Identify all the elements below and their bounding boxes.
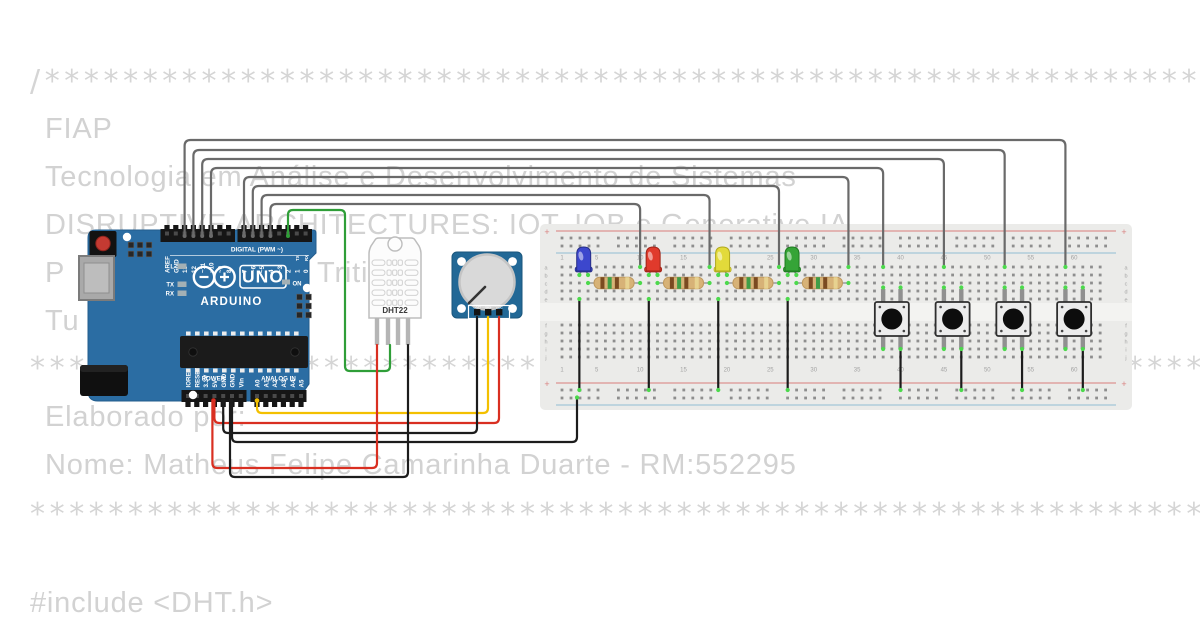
breadboard-hole xyxy=(1029,282,1032,285)
breadboard-hole xyxy=(1030,397,1033,400)
breadboard-hole xyxy=(864,298,867,301)
breadboard-hole xyxy=(587,324,590,327)
breadboard-hole xyxy=(691,266,694,269)
breadboard-hole xyxy=(682,274,685,277)
connection-dot xyxy=(1003,265,1007,269)
breadboard-hole xyxy=(995,348,998,351)
connection-dot xyxy=(647,273,651,277)
pin-label: 0 xyxy=(303,269,310,273)
breadboard-hole xyxy=(734,332,737,335)
breadboard-hole xyxy=(1099,340,1102,343)
breadboard-hole xyxy=(1012,340,1015,343)
breadboard-hole xyxy=(908,397,911,400)
breadboard-hole xyxy=(757,389,760,392)
breadboard-hole xyxy=(691,332,694,335)
breadboard-hole xyxy=(899,237,902,240)
breadboard-hole xyxy=(743,290,746,293)
breadboard-hole xyxy=(852,237,855,240)
breadboard-hole xyxy=(1090,266,1093,269)
breadboard-hole xyxy=(647,290,650,293)
breadboard-hole xyxy=(916,324,919,327)
connection-dot xyxy=(716,388,720,392)
connection-dot xyxy=(586,281,590,285)
breadboard-hole xyxy=(879,245,882,248)
breadboard-hole xyxy=(812,324,815,327)
breadboard-hole xyxy=(1104,397,1107,400)
breadboard-hole xyxy=(1099,298,1102,301)
led-red[interactable] xyxy=(645,247,662,275)
breadboard-hole xyxy=(561,348,564,351)
connection-dot xyxy=(794,281,798,285)
breadboard-hole xyxy=(908,348,911,351)
rail-plus-sign: + xyxy=(1121,379,1126,389)
breadboard-hole xyxy=(813,389,816,392)
breadboard-hole xyxy=(656,298,659,301)
breadboard-hole xyxy=(864,290,867,293)
button-cap[interactable] xyxy=(1064,309,1085,330)
breadboard-hole xyxy=(969,340,972,343)
breadboard-hole xyxy=(635,389,638,392)
button-cap[interactable] xyxy=(881,309,902,330)
breadboard-hole xyxy=(665,324,668,327)
pin-label: GND xyxy=(230,373,237,387)
connection-dot xyxy=(638,281,642,285)
breadboard-hole xyxy=(1047,356,1050,359)
breadboard-hole xyxy=(795,237,798,240)
breadboard-hole xyxy=(1048,245,1051,248)
breadboard-hole xyxy=(561,266,564,269)
breadboard-hole xyxy=(665,290,668,293)
row-letter: b xyxy=(544,273,547,279)
breadboard-hole xyxy=(587,332,590,335)
breadboard-hole xyxy=(847,348,850,351)
breadboard-hole xyxy=(804,389,807,392)
breadboard-hole xyxy=(916,356,919,359)
connection-dot xyxy=(1063,285,1067,289)
connection-dot xyxy=(846,265,850,269)
breadboard-hole xyxy=(879,389,882,392)
breadboard-hole xyxy=(778,274,781,277)
resistor[interactable] xyxy=(796,277,848,289)
breadboard-hole xyxy=(873,356,876,359)
onboard-led xyxy=(178,282,187,288)
breadboard-hole xyxy=(673,356,676,359)
breadboard-hole xyxy=(812,266,815,269)
breadboard-hole xyxy=(982,397,985,400)
breadboard-hole xyxy=(973,397,976,400)
column-number: 30 xyxy=(810,256,817,262)
breadboard-hole xyxy=(778,290,781,293)
breadboard-hole xyxy=(604,274,607,277)
breadboard-hole xyxy=(1073,290,1076,293)
breadboard-hole xyxy=(1099,282,1102,285)
dht22-label: DHT22 xyxy=(382,306,408,315)
led-green[interactable] xyxy=(784,247,801,275)
dht22-pin xyxy=(375,318,379,345)
breadboard-hole xyxy=(899,397,902,400)
breadboard-hole xyxy=(621,348,624,351)
breadboard-hole xyxy=(613,356,616,359)
breadboard-hole xyxy=(734,266,737,269)
breadboard-hole xyxy=(604,266,607,269)
breadboard-hole xyxy=(691,274,694,277)
breadboard-hole xyxy=(644,389,647,392)
breadboard-hole xyxy=(951,340,954,343)
pot-pin xyxy=(485,309,491,315)
breadboard-hole xyxy=(604,356,607,359)
arduino-uno[interactable]: AREFGND1312~11~10~987~6~54~3210TXRXIOREF… xyxy=(79,225,316,407)
breadboard-hole xyxy=(916,274,919,277)
breadboard-hole xyxy=(1029,274,1032,277)
breadboard-hole xyxy=(604,340,607,343)
breadboard-hole xyxy=(1021,266,1024,269)
breadboard-hole xyxy=(804,245,807,248)
breadboard-hole xyxy=(838,356,841,359)
breadboard-hole xyxy=(630,324,633,327)
pot-pin-label: SIG xyxy=(485,305,491,309)
breadboard-hole xyxy=(864,356,867,359)
resistor[interactable] xyxy=(727,277,779,289)
breadboard-hole xyxy=(838,332,841,335)
column-number: 25 xyxy=(767,256,774,262)
breadboard-hole xyxy=(691,356,694,359)
breadboard-hole xyxy=(653,397,656,400)
breadboard-hole xyxy=(795,298,798,301)
breadboard-hole xyxy=(708,324,711,327)
breadboard-hole xyxy=(760,266,763,269)
breadboard-hole xyxy=(916,340,919,343)
breadboard-hole xyxy=(1021,245,1024,248)
breadboard-hole xyxy=(925,332,928,335)
icsp-pin xyxy=(297,312,303,318)
breadboard-hole xyxy=(630,356,633,359)
connection-dot xyxy=(577,297,581,301)
breadboard-hole xyxy=(569,324,572,327)
breadboard-hole xyxy=(588,245,591,248)
breadboard-hole xyxy=(969,298,972,301)
breadboard-hole xyxy=(1086,237,1089,240)
breadboard-hole xyxy=(969,266,972,269)
breadboard-hole xyxy=(644,237,647,240)
breadboard-hole xyxy=(1081,282,1084,285)
connection-dot xyxy=(846,281,850,285)
breadboard-hole xyxy=(830,348,833,351)
icsp-pin xyxy=(297,303,303,309)
connection-dot xyxy=(786,297,790,301)
breadboard-hole xyxy=(1090,290,1093,293)
breadboard-hole xyxy=(1021,282,1024,285)
breadboard-hole xyxy=(709,389,712,392)
breadboard-hole xyxy=(613,290,616,293)
breadboard-hole xyxy=(708,340,711,343)
breadboard-hole xyxy=(673,348,676,351)
breadboard-hole xyxy=(621,356,624,359)
connection-dot xyxy=(942,265,946,269)
breadboard-hole xyxy=(769,266,772,269)
breadboard-hole xyxy=(804,324,807,327)
breadboard-hole xyxy=(822,245,825,248)
connection-dot xyxy=(898,285,902,289)
breadboard-hole xyxy=(879,397,882,400)
breadboard-hole xyxy=(588,237,591,240)
icsp-pin xyxy=(128,242,134,248)
breadboard-hole xyxy=(1030,245,1033,248)
column-number: 45 xyxy=(941,368,948,374)
breadboard-hole xyxy=(1038,298,1041,301)
breadboard-hole xyxy=(1099,348,1102,351)
breadboard-hole xyxy=(665,332,668,335)
breadboard-hole xyxy=(986,290,989,293)
connection-dot xyxy=(959,347,963,351)
uno-label: UNO xyxy=(242,267,284,287)
breadboard-hole xyxy=(934,290,937,293)
breadboard-hole xyxy=(708,356,711,359)
breadboard-hole xyxy=(743,298,746,301)
breadboard-hole xyxy=(621,324,624,327)
breadboard-hole xyxy=(769,290,772,293)
breadboard-hole xyxy=(569,298,572,301)
mounting-hole xyxy=(308,390,316,398)
breadboard-hole xyxy=(778,340,781,343)
breadboard-hole xyxy=(760,356,763,359)
breadboard-hole xyxy=(1029,340,1032,343)
breadboard-hole xyxy=(821,356,824,359)
icsp-pin xyxy=(306,303,312,309)
breadboard-hole xyxy=(635,237,638,240)
breadboard-hole xyxy=(856,266,859,269)
breadboard-hole xyxy=(639,274,642,277)
breadboard-hole xyxy=(639,348,642,351)
resistor[interactable] xyxy=(657,277,709,289)
breadboard-hole xyxy=(1012,290,1015,293)
breadboard-hole xyxy=(595,324,598,327)
breadboard-hole xyxy=(864,324,867,327)
breadboard-hole xyxy=(1038,356,1041,359)
breadboard-hole xyxy=(821,340,824,343)
breadboard-hole xyxy=(613,340,616,343)
breadboard-hole xyxy=(821,266,824,269)
breadboard-hole xyxy=(977,356,980,359)
breadboard-hole xyxy=(908,274,911,277)
breadboard[interactable]: ++++115510101515202025253030353540404545… xyxy=(540,224,1132,410)
breadboard-hole xyxy=(1077,237,1080,240)
resistor[interactable] xyxy=(588,277,640,289)
breadboard-hole xyxy=(626,397,629,400)
breadboard-hole xyxy=(1086,245,1089,248)
breadboard-hole xyxy=(847,274,850,277)
mounting-hole xyxy=(303,284,311,292)
breadboard-hole xyxy=(943,274,946,277)
breadboard-hole xyxy=(991,397,994,400)
breadboard-hole xyxy=(925,340,928,343)
potentiometer[interactable]: GNDSIGVCC xyxy=(452,252,522,319)
breadboard-hole xyxy=(795,324,798,327)
breadboard-hole xyxy=(682,237,685,240)
button-cap[interactable] xyxy=(942,309,963,330)
column-number: 55 xyxy=(1027,256,1034,262)
breadboard-hole xyxy=(917,389,920,392)
breadboard-hole xyxy=(682,245,685,248)
column-number: 50 xyxy=(984,256,991,262)
breadboard-hole xyxy=(621,274,624,277)
breadboard-hole xyxy=(656,356,659,359)
mounting-hole xyxy=(189,391,197,399)
breadboard-hole xyxy=(1029,266,1032,269)
breadboard-hole xyxy=(1095,245,1098,248)
breadboard-hole xyxy=(760,324,763,327)
breadboard-hole xyxy=(1104,389,1107,392)
connection-dot xyxy=(242,234,246,238)
breadboard-hole xyxy=(925,282,928,285)
breadboard-hole xyxy=(1038,348,1041,351)
breadboard-hole xyxy=(752,340,755,343)
breadboard-hole xyxy=(699,324,702,327)
breadboard-hole xyxy=(617,245,620,248)
breadboard-hole xyxy=(1048,397,1051,400)
connection-dot xyxy=(575,395,579,399)
row-letter: b xyxy=(1124,273,1127,279)
breadboard-hole xyxy=(1038,332,1041,335)
breadboard-hole xyxy=(621,298,624,301)
breadboard-hole xyxy=(821,348,824,351)
breadboard-hole xyxy=(847,290,850,293)
breadboard-hole xyxy=(995,274,998,277)
breadboard-hole xyxy=(804,290,807,293)
breadboard-hole xyxy=(739,397,742,400)
icsp-pin xyxy=(128,251,134,257)
breadboard-hole xyxy=(908,282,911,285)
connection-dot xyxy=(1020,347,1024,351)
pin-label-tx: TX xyxy=(295,255,300,261)
led-yellow[interactable] xyxy=(714,247,731,275)
column-number: 15 xyxy=(680,368,687,374)
connection-dot xyxy=(959,388,963,392)
breadboard-hole xyxy=(561,274,564,277)
breadboard-hole xyxy=(570,245,573,248)
breadboard-hole xyxy=(748,245,751,248)
breadboard-hole xyxy=(569,348,572,351)
breadboard-hole xyxy=(691,340,694,343)
breadboard-hole xyxy=(1039,237,1042,240)
breadboard-hole xyxy=(1038,266,1041,269)
pot-pin-label: VCC xyxy=(496,305,504,309)
breadboard-hole xyxy=(595,348,598,351)
button-cap[interactable] xyxy=(1003,309,1024,330)
breadboard-hole xyxy=(908,245,911,248)
breadboard-hole xyxy=(682,332,685,335)
breadboard-hole xyxy=(856,324,859,327)
breadboard-hole xyxy=(569,282,572,285)
breadboard-hole xyxy=(916,290,919,293)
column-number: 20 xyxy=(724,368,731,374)
breadboard-hole xyxy=(856,348,859,351)
breadboard-hole xyxy=(812,290,815,293)
breadboard-hole xyxy=(1039,245,1042,248)
row-letter: i xyxy=(1125,347,1126,353)
breadboard-hole xyxy=(665,298,668,301)
connection-dot xyxy=(1063,347,1067,351)
connection-dot xyxy=(255,398,260,403)
breadboard-hole xyxy=(1064,356,1067,359)
led-rx-label: RX xyxy=(166,292,174,298)
breadboard-hole xyxy=(822,397,825,400)
breadboard-hole xyxy=(766,237,769,240)
column-number: 35 xyxy=(854,256,861,262)
breadboard-hole xyxy=(613,332,616,335)
breadboard-hole xyxy=(843,389,846,392)
breadboard-hole xyxy=(630,298,633,301)
breadboard-hole xyxy=(778,332,781,335)
breadboard-hole xyxy=(1055,266,1058,269)
breadboard-hole xyxy=(734,340,737,343)
breadboard-hole xyxy=(617,397,620,400)
breadboard-hole xyxy=(899,274,902,277)
breadboard-hole xyxy=(699,356,702,359)
breadboard-hole xyxy=(691,290,694,293)
connection-dot xyxy=(777,281,781,285)
breadboard-hole xyxy=(830,274,833,277)
breadboard-hole xyxy=(838,266,841,269)
breadboard-hole xyxy=(856,290,859,293)
pot-knob[interactable] xyxy=(460,255,515,310)
breadboard-hole xyxy=(699,298,702,301)
breadboard-hole xyxy=(1095,389,1098,392)
breadboard-hole xyxy=(916,266,919,269)
onboard-led xyxy=(178,264,187,270)
connection-dot xyxy=(260,234,264,238)
power-caption: POWER xyxy=(202,376,226,383)
breadboard-hole xyxy=(1073,266,1076,269)
breadboard-hole xyxy=(926,397,929,400)
breadboard-hole xyxy=(1012,397,1015,400)
breadboard-hole xyxy=(786,397,789,400)
breadboard-hole xyxy=(838,340,841,343)
breadboard-hole xyxy=(1029,348,1032,351)
breadboard-hole xyxy=(656,340,659,343)
breadboard-hole xyxy=(964,245,967,248)
breadboard-hole xyxy=(830,356,833,359)
breadboard-hole xyxy=(1021,237,1024,240)
dht22-sensor[interactable]: DHT22 xyxy=(369,237,421,345)
breadboard-hole xyxy=(986,274,989,277)
breadboard-hole xyxy=(752,332,755,335)
breadboard-hole xyxy=(830,266,833,269)
breadboard-hole xyxy=(934,282,937,285)
reset-button[interactable] xyxy=(96,236,110,250)
connection-dot xyxy=(881,285,885,289)
breadboard-hole xyxy=(917,397,920,400)
breadboard-hole xyxy=(873,298,876,301)
breadboard-hole xyxy=(813,237,816,240)
atmega-chip xyxy=(180,336,308,368)
row-letter: d xyxy=(544,289,547,295)
breadboard-hole xyxy=(1090,274,1093,277)
breadboard-hole xyxy=(1047,332,1050,335)
breadboard-hole xyxy=(908,340,911,343)
icsp-pin xyxy=(146,242,152,248)
column-number: 55 xyxy=(1027,368,1034,374)
rail-plus-sign: + xyxy=(544,379,549,389)
breadboard-hole xyxy=(595,274,598,277)
breadboard-hole xyxy=(804,348,807,351)
breadboard-hole xyxy=(955,237,958,240)
led-tx-label: TX xyxy=(166,283,174,289)
led-blue[interactable] xyxy=(575,247,592,275)
breadboard-hole xyxy=(699,348,702,351)
breadboard-hole xyxy=(908,237,911,240)
breadboard-hole xyxy=(752,266,755,269)
breadboard-hole xyxy=(934,340,937,343)
